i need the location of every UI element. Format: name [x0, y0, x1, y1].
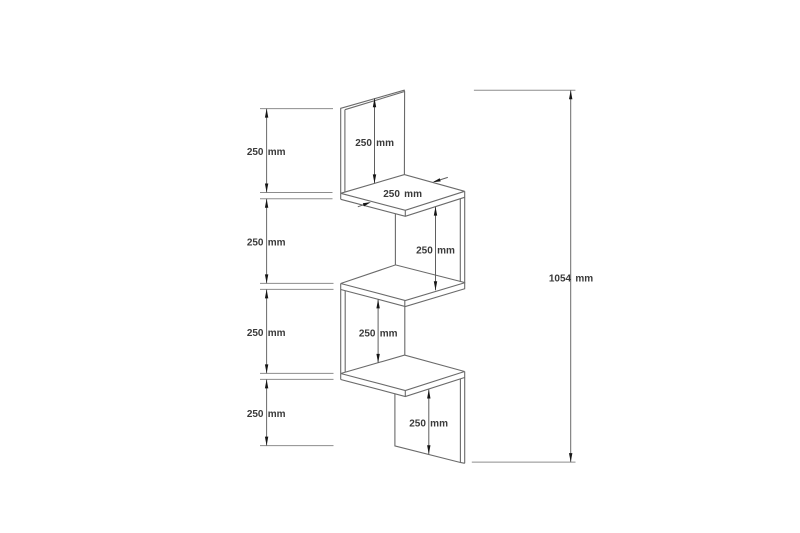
svg-text:250 mm: 250 mm [416, 246, 455, 257]
svg-text:250 mm: 250 mm [355, 138, 394, 149]
svg-text:250 mm: 250 mm [247, 328, 286, 339]
svg-text:250 mm: 250 mm [247, 237, 286, 248]
svg-text:250 mm: 250 mm [247, 147, 286, 158]
svg-text:250 mm: 250 mm [409, 419, 448, 430]
svg-text:250 mm: 250 mm [383, 189, 422, 200]
svg-text:250 mm: 250 mm [247, 409, 286, 420]
svg-text:250 mm: 250 mm [359, 329, 398, 340]
svg-text:1054 mm: 1054 mm [549, 273, 593, 284]
